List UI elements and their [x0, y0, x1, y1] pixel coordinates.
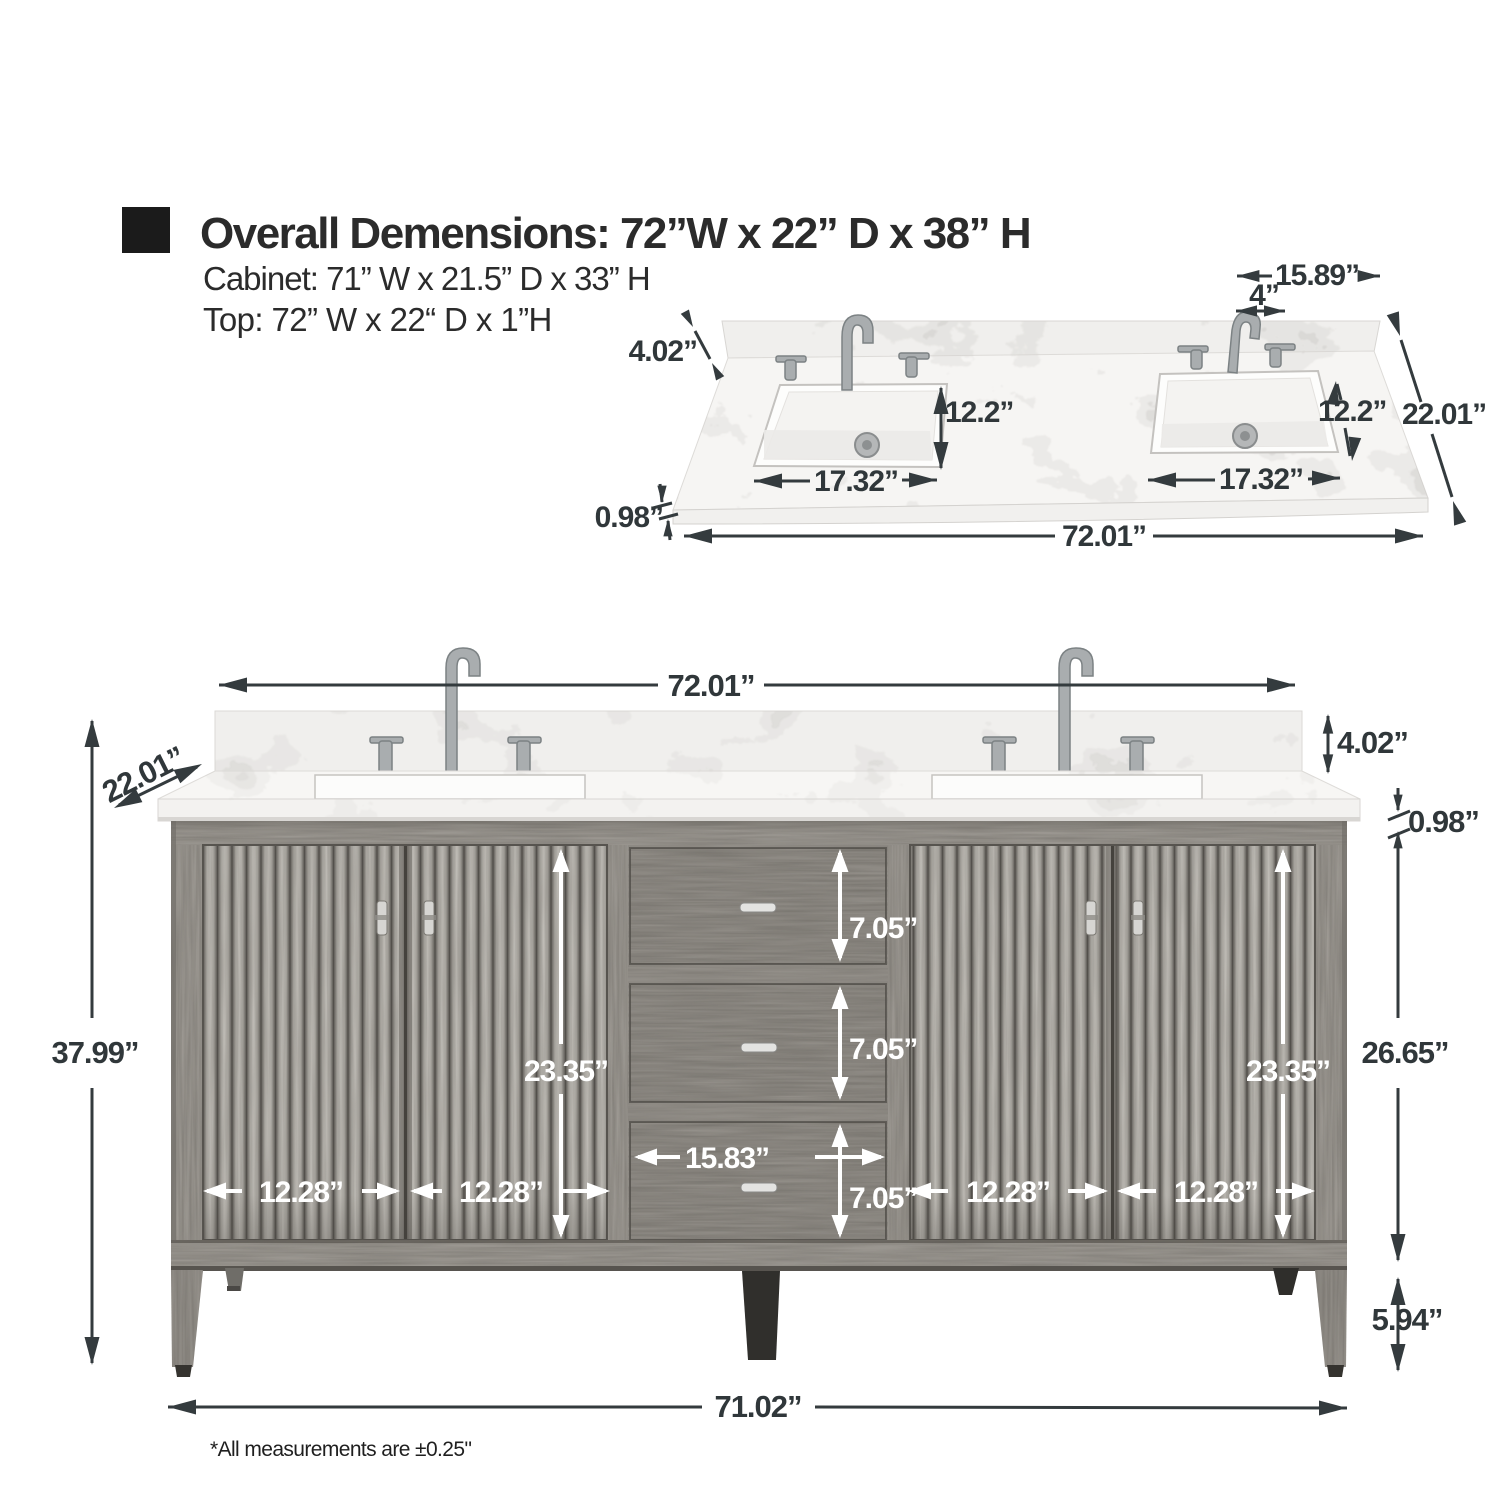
- svg-text:17.32”: 17.32”: [1219, 463, 1303, 496]
- svg-text:17.32”: 17.32”: [814, 465, 898, 498]
- svg-text:7.05”: 7.05”: [849, 912, 917, 945]
- svg-text:23.35”: 23.35”: [1246, 1055, 1330, 1088]
- svg-text:12.28”: 12.28”: [966, 1176, 1050, 1209]
- svg-text:Top: 72” W x 22“ D x 1”H: Top: 72” W x 22“ D x 1”H: [203, 301, 552, 338]
- svg-text:0.98”: 0.98”: [1408, 804, 1479, 839]
- svg-text:72.01”: 72.01”: [1062, 520, 1146, 553]
- svg-text:Overall Demensions: 72”W x 22”: Overall Demensions: 72”W x 22” D x 38” H: [200, 209, 1030, 258]
- svg-text:12.28”: 12.28”: [1174, 1176, 1258, 1209]
- svg-text:12.2”: 12.2”: [945, 396, 1013, 429]
- svg-text:5.94”: 5.94”: [1372, 1302, 1443, 1337]
- svg-text:72.01”: 72.01”: [667, 668, 754, 703]
- svg-text:7.05”: 7.05”: [849, 1033, 917, 1066]
- svg-text:15.89”: 15.89”: [1275, 259, 1359, 292]
- svg-text:12.28”: 12.28”: [459, 1176, 543, 1209]
- svg-text:15.83”: 15.83”: [685, 1142, 769, 1175]
- svg-text:4.02”: 4.02”: [629, 335, 697, 368]
- svg-text:7.05”: 7.05”: [849, 1182, 917, 1215]
- svg-text:0.98”: 0.98”: [595, 501, 663, 534]
- svg-text:22.01”: 22.01”: [1402, 398, 1486, 431]
- svg-text:Cabinet: 71” W x 21.5” D x 33”: Cabinet: 71” W x 21.5” D x 33” H: [203, 260, 650, 297]
- svg-text:26.65”: 26.65”: [1361, 1035, 1448, 1070]
- svg-text:71.02”: 71.02”: [714, 1389, 801, 1424]
- svg-text:4.02”: 4.02”: [1337, 725, 1408, 760]
- svg-text:23.35”: 23.35”: [524, 1055, 608, 1088]
- svg-text:*All measurements are ±0.25": *All measurements are ±0.25": [210, 1438, 471, 1461]
- svg-text:12.28”: 12.28”: [259, 1176, 343, 1209]
- svg-text:12.2”: 12.2”: [1318, 395, 1386, 428]
- svg-text:37.99”: 37.99”: [51, 1035, 138, 1070]
